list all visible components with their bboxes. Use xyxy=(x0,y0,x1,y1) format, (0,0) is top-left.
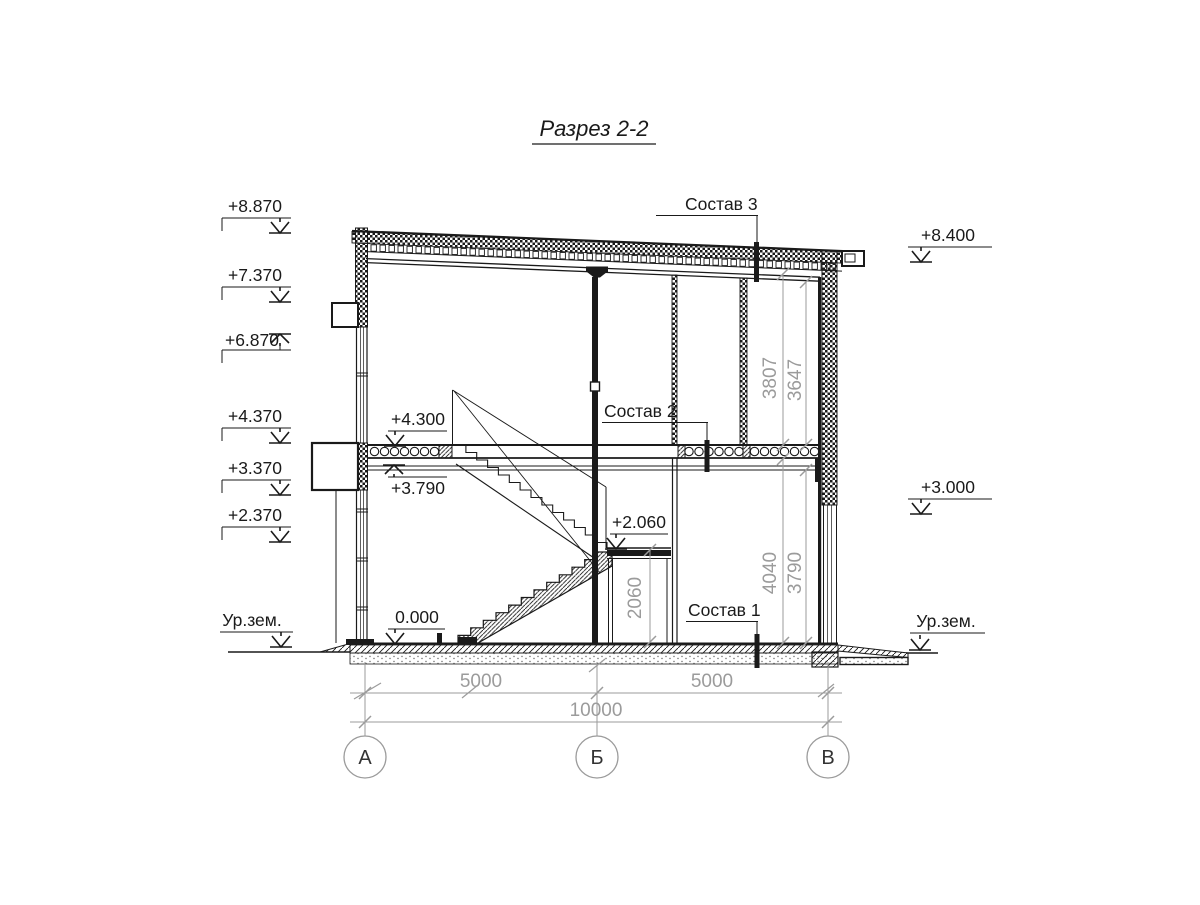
mark-6870-label: +6.870 xyxy=(225,330,279,350)
callout-floor1-label: Состав 1 xyxy=(688,600,761,620)
mark-4370: +4.370 xyxy=(222,406,291,443)
hollow-core-void xyxy=(420,447,428,455)
roof-rib xyxy=(668,257,673,263)
hollow-core-void xyxy=(750,447,758,455)
mark-2370-label: +2.370 xyxy=(228,505,282,525)
elevation-marks-left: +8.870 +7.370 +6.870 +4.370 +3.370 +2.37… xyxy=(220,196,293,647)
dim-total-label: 10000 xyxy=(570,700,623,721)
roof-rib xyxy=(407,246,412,252)
roof-rib xyxy=(596,254,601,260)
column-capital-flange xyxy=(586,267,608,273)
roof-rib xyxy=(659,257,664,263)
mark-6870: +6.870 xyxy=(222,330,291,363)
right-wall xyxy=(818,251,837,643)
drawing-title: Разрез 2-2 xyxy=(532,116,656,144)
roof-rib xyxy=(803,263,808,269)
column-axis-b xyxy=(592,277,598,643)
hollow-core-void xyxy=(760,447,768,455)
ground-left-label: Ур.зем. xyxy=(222,610,281,630)
entrance-ramp-right xyxy=(838,645,908,658)
upper-flight-soffit xyxy=(456,464,597,560)
roof-rib xyxy=(461,249,466,255)
roof-rib xyxy=(632,256,637,262)
hollow-core-void xyxy=(735,447,743,455)
axis-v-label: В xyxy=(821,747,834,769)
axis-b-label: Б xyxy=(590,747,603,769)
axis-bubble-a: А xyxy=(344,736,386,778)
slab-end-block-left xyxy=(439,446,452,459)
dim-span1-label: 5000 xyxy=(460,671,502,692)
column-capital-taper xyxy=(587,272,607,278)
roof-gutter-inner xyxy=(845,254,855,262)
axis-bubble-b: Б xyxy=(576,736,618,778)
mark-ground-left: Ур.зем. xyxy=(220,610,293,647)
left-wall-lintel-box xyxy=(332,303,358,327)
roof-rib xyxy=(641,256,646,262)
roof-rib xyxy=(749,260,754,266)
right-wall-inner-face xyxy=(818,277,821,643)
callout-roof-label: Состав 3 xyxy=(685,194,758,214)
roof-rib xyxy=(443,248,448,254)
roof-rib xyxy=(497,250,502,256)
mark-0000: 0.000 xyxy=(384,607,445,644)
mark-ground-right: Ур.зем. xyxy=(909,611,985,650)
mark-7370: +7.370 xyxy=(222,265,291,302)
roof-rib xyxy=(785,262,790,268)
lower-flight-cut xyxy=(458,552,612,643)
roof-rib xyxy=(713,259,718,265)
ground-right-label: Ур.зем. xyxy=(916,611,975,631)
mark-3370: +3.370 xyxy=(222,458,291,495)
mark-3000: +3.000 xyxy=(908,477,992,514)
roof-rib xyxy=(614,255,619,261)
mark-8870-label: +8.870 xyxy=(228,196,282,216)
roof-rib xyxy=(371,245,376,251)
mark-4300: +4.300 xyxy=(384,409,447,446)
roof-rib xyxy=(488,250,493,256)
roof-assembly xyxy=(352,231,864,281)
hollow-core-void xyxy=(715,447,723,455)
hollow-core-void xyxy=(390,447,398,455)
roof-rib xyxy=(542,252,547,258)
dim-4040-label: 4040 xyxy=(760,552,781,594)
floor-underlay-dots xyxy=(350,653,838,664)
roof-rib xyxy=(506,250,511,256)
mark-3790-label: +3.790 xyxy=(391,478,445,498)
hollow-core-void xyxy=(790,447,798,455)
mark-7370-label: +7.370 xyxy=(228,265,282,285)
roof-rib xyxy=(389,246,394,252)
mark-2370: +2.370 xyxy=(222,505,291,542)
hollow-core-void xyxy=(810,447,818,455)
window-transoms xyxy=(356,373,368,610)
hollow-core-void xyxy=(685,447,693,455)
dim-span2-label: 5000 xyxy=(691,671,733,692)
floor-screed-hatch xyxy=(350,645,838,653)
landing-slab xyxy=(607,550,671,556)
roof-rib xyxy=(416,247,421,253)
mark-8400-label: +8.400 xyxy=(921,225,975,245)
roof-rib xyxy=(812,263,817,269)
slab-end-block-mid xyxy=(678,446,685,459)
roof-rib xyxy=(470,249,475,255)
bottom-dimensions: 5000 5000 10000 А Б В xyxy=(344,659,849,778)
dim-3647-label: 3647 xyxy=(785,359,806,401)
stair-outline-beyond xyxy=(454,391,600,573)
balcony-canopy-box xyxy=(312,443,358,490)
callout-floor2-label: Состав 2 xyxy=(604,401,677,421)
right-wall-masonry xyxy=(822,251,837,505)
hollow-core-void xyxy=(430,447,438,455)
callout-floor2: Состав 2 xyxy=(602,401,710,472)
section-drawing: Разрез 2-2 xyxy=(0,0,1200,900)
mark-0000-label: 0.000 xyxy=(395,607,439,627)
hollow-core-void xyxy=(370,447,378,455)
axis-a-label: А xyxy=(358,747,372,769)
roof-rib xyxy=(434,247,439,253)
roof-rib xyxy=(524,251,529,257)
hollow-core-void xyxy=(400,447,408,455)
partition-wall-2-upper xyxy=(740,278,747,445)
column-splice-plate xyxy=(591,382,600,391)
upper-flight-steps xyxy=(455,445,607,550)
roof-rib xyxy=(380,245,385,251)
roof-rib xyxy=(731,260,736,266)
mark-3000-label: +3.000 xyxy=(921,477,975,497)
roof-rib xyxy=(677,257,682,263)
roof-rib xyxy=(452,248,457,254)
hollow-core-void xyxy=(770,447,778,455)
roof-rib xyxy=(578,253,583,259)
roof-rib xyxy=(605,254,610,260)
roof-rib xyxy=(569,253,574,259)
left-wall xyxy=(312,228,374,645)
slab-joint-block xyxy=(743,446,750,459)
elevation-marks-right: +8.400 +3.000 Ур.зем. xyxy=(908,225,992,650)
roof-rib xyxy=(398,246,403,252)
hollow-core-void xyxy=(380,447,388,455)
mark-8400: +8.400 xyxy=(908,225,992,262)
hollow-core-void xyxy=(695,447,703,455)
ground-floor xyxy=(228,644,938,668)
mark-8870: +8.870 xyxy=(222,196,291,233)
roof-rib xyxy=(767,261,772,267)
title-text: Разрез 2-2 xyxy=(539,116,648,141)
roof-rib xyxy=(551,252,556,258)
roof-rib xyxy=(776,261,781,267)
roof-rib xyxy=(479,249,484,255)
axis-bubble-v: В xyxy=(807,736,849,778)
mark-3370-label: +3.370 xyxy=(228,458,282,478)
hollow-core-void xyxy=(410,447,418,455)
roof-rib xyxy=(533,251,538,257)
roof-rib xyxy=(650,256,655,262)
dim-2060-label: 2060 xyxy=(625,577,646,619)
roof-rib xyxy=(686,258,691,264)
callout-roof: Состав 3 xyxy=(656,194,759,282)
hollow-core-void xyxy=(725,447,733,455)
dim-3807-label: 3807 xyxy=(760,357,781,399)
foundation-block xyxy=(812,652,838,667)
mark-2060: +2.060 xyxy=(605,512,668,549)
roof-rib xyxy=(740,260,745,266)
roof-rib xyxy=(695,258,700,264)
drawing-sheet: Разрез 2-2 xyxy=(0,0,1200,900)
entrance-ramp-left xyxy=(320,644,350,653)
roof-rib xyxy=(560,253,565,259)
roof-rib xyxy=(623,255,628,261)
mark-4370-label: +4.370 xyxy=(228,406,282,426)
ramp-base-right xyxy=(840,658,908,665)
roof-rib xyxy=(515,251,520,257)
mark-4300-label: +4.300 xyxy=(391,409,445,429)
roof-rib xyxy=(722,259,727,265)
roof-rib xyxy=(587,254,592,260)
roof-rib xyxy=(704,258,709,264)
roof-rib xyxy=(794,262,799,268)
stair-railing-rail xyxy=(453,390,607,487)
mark-2060-label: +2.060 xyxy=(612,512,666,532)
roof-rib xyxy=(425,247,430,253)
dim-3790-label: 3790 xyxy=(785,552,806,594)
